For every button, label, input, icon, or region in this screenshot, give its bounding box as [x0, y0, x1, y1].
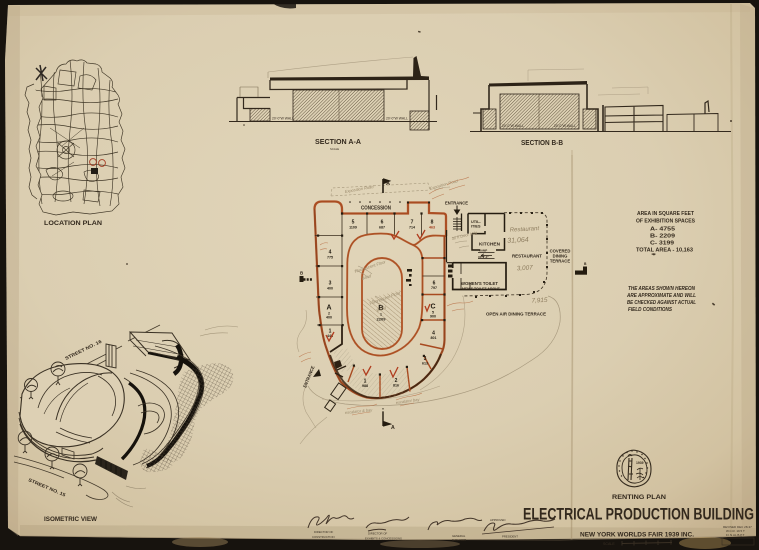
svg-text:20'-0"W WALL: 20'-0"W WALL [502, 124, 524, 128]
svg-text:687: 687 [379, 226, 385, 230]
svg-text:ARE APPROXIMATE AND WILL: ARE APPROXIMATE AND WILL [626, 293, 696, 299]
svg-text:OF EXHIBITION SPACES: OF EXHIBITION SPACES [636, 219, 695, 225]
svg-text:SECTION B-B: SECTION B-B [521, 140, 563, 147]
svg-text:801: 801 [431, 336, 437, 340]
svg-text:EXHIBITS & CONCESSIONS: EXHIBITS & CONCESSIONS [365, 537, 402, 541]
svg-text:WOMEN'S TOILET: WOMEN'S TOILET [461, 281, 498, 286]
svg-text:PRESIDENT: PRESIDENT [502, 535, 518, 539]
svg-text:775: 775 [327, 256, 333, 260]
svg-text:A: A [326, 305, 331, 312]
svg-text:7,915: 7,915 [531, 297, 548, 305]
svg-text:FIELD CONDITIONS: FIELD CONDITIONS [628, 307, 672, 313]
svg-text:LOCATION PLAN: LOCATION PLAN [44, 220, 102, 227]
svg-text:TERRACE: TERRACE [550, 259, 570, 264]
svg-text:RENTING PLAN: RENTING PLAN [612, 494, 667, 501]
svg-text:ITIES: ITIES [471, 225, 481, 229]
svg-text:BE CHECKED AGAINST ACTUAL: BE CHECKED AGAINST ACTUAL [627, 300, 696, 306]
svg-text:A: A [391, 425, 395, 431]
svg-text:400: 400 [327, 287, 333, 291]
svg-text:A: A [386, 181, 390, 187]
svg-text:AREA IN SQUARE FEET: AREA IN SQUARE FEET [637, 211, 695, 217]
svg-text:C: C [430, 304, 435, 311]
svg-text:3,007: 3,007 [517, 264, 534, 272]
svg-text:RAMP: RAMP [479, 249, 487, 253]
svg-text:B- 2209: B- 2209 [650, 234, 675, 240]
svg-text:816: 816 [393, 384, 399, 388]
svg-text:C- 3199: C- 3199 [650, 241, 674, 247]
svg-text:1109: 1109 [349, 226, 357, 230]
svg-text:OPEN AIR DINING TERRACE: OPEN AIR DINING TERRACE [486, 312, 547, 318]
svg-text:NEW YORK WORLDS FAIR 1939 INC.: NEW YORK WORLDS FAIR 1939 INC. [580, 532, 694, 539]
svg-text:2209: 2209 [377, 317, 387, 322]
svg-text:APPROVED: APPROVED [490, 518, 506, 522]
svg-text:DIRECTOR OF: DIRECTOR OF [314, 530, 334, 534]
svg-text:SCALE: SCALE [330, 147, 339, 151]
svg-text:400: 400 [326, 316, 332, 320]
svg-text:RESTAURANT: RESTAURANT [512, 254, 542, 260]
svg-text:UP 2'-0": UP 2'-0" [478, 255, 489, 259]
svg-text:UTIL-: UTIL- [471, 220, 481, 224]
svg-text:20'-0"W WALL: 20'-0"W WALL [272, 117, 294, 121]
svg-text:900: 900 [430, 315, 436, 319]
svg-text:797: 797 [431, 286, 437, 290]
svg-text:TOTAL AREA - 10,163: TOTAL AREA - 10,163 [636, 248, 693, 254]
svg-text:MANAGER: MANAGER [452, 538, 466, 542]
svg-text:MEN'S TOILET ABOVE: MEN'S TOILET ABOVE [462, 287, 500, 291]
svg-text:31,064: 31,064 [507, 237, 529, 245]
svg-text:1939: 1939 [636, 461, 644, 465]
svg-text:20'-0"W WALL: 20'-0"W WALL [554, 124, 576, 128]
svg-text:20'-0"W WALL: 20'-0"W WALL [386, 117, 408, 121]
svg-text:463: 463 [429, 226, 435, 230]
svg-text:F.I.N.AL B.P.T: F.I.N.AL B.P.T [726, 533, 745, 537]
svg-text:714: 714 [409, 226, 415, 230]
svg-text:SECTION A-A: SECTION A-A [315, 139, 361, 146]
svg-text:B: B [300, 271, 303, 276]
svg-text:ELECTRICAL PRODUCTION BUILDING: ELECTRICAL PRODUCTION BUILDING [523, 506, 754, 524]
svg-text:DIRECTOR OF: DIRECTOR OF [368, 532, 388, 536]
svg-text:ISOMETRIC VIEW: ISOMETRIC VIEW [44, 516, 98, 523]
svg-text:SCALE: SCALE [603, 542, 615, 546]
svg-text:988: 988 [362, 384, 368, 388]
svg-text:CONCESSION: CONCESSION [361, 206, 391, 212]
svg-text:ENTRANCE: ENTRANCE [445, 201, 468, 206]
svg-text:THE AREAS SHOWN HEREON: THE AREAS SHOWN HEREON [628, 286, 696, 292]
svg-text:A- 4755: A- 4755 [650, 227, 675, 233]
svg-text:KITCHEN: KITCHEN [479, 242, 501, 247]
svg-text:613: 613 [422, 362, 428, 366]
svg-text:CONSTRUCTION: CONSTRUCTION [312, 535, 335, 539]
